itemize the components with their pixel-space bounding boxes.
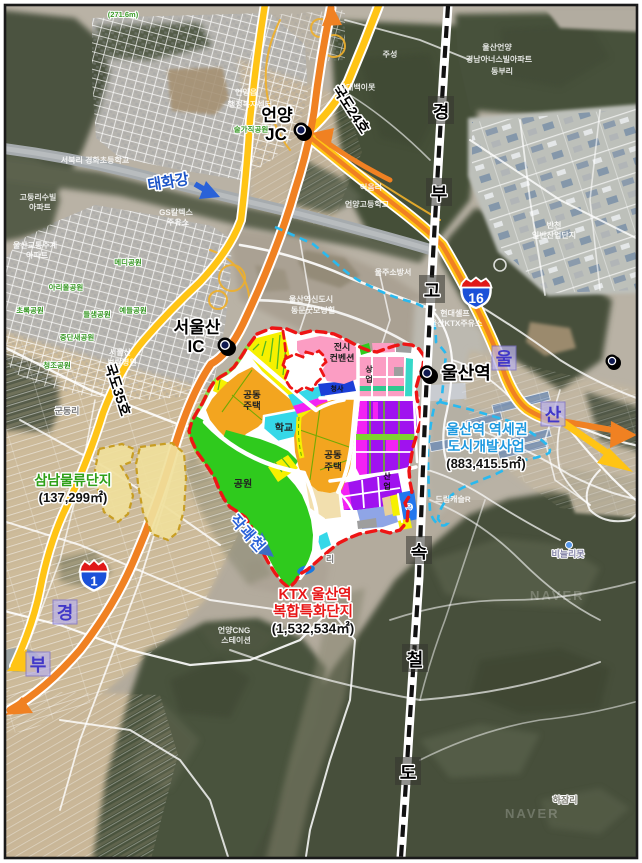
svg-text:현대셀프: 현대셀프	[440, 309, 470, 318]
svg-text:울산역신도시: 울산역신도시	[289, 295, 333, 304]
svg-text:1: 1	[90, 574, 97, 589]
svg-text:JC: JC	[265, 125, 287, 144]
svg-text:(137,299㎡): (137,299㎡)	[39, 490, 108, 505]
svg-text:울산역: 울산역	[441, 363, 491, 383]
svg-text:울산KTX주유소: 울산KTX주유소	[430, 319, 483, 328]
svg-text:부: 부	[30, 655, 47, 675]
svg-text:공동: 공동	[324, 450, 342, 461]
svg-text:울산역 역세권: 울산역 역세권	[446, 421, 527, 437]
svg-text:업: 업	[383, 482, 390, 491]
svg-text:전시: 전시	[334, 342, 351, 352]
svg-text:경남아너스빌아파트: 경남아너스빌아파트	[466, 55, 533, 64]
svg-text:군동리: 군동리	[55, 406, 80, 416]
svg-text:울: 울	[496, 349, 513, 369]
svg-text:서울산: 서울산	[174, 318, 221, 337]
svg-text:부: 부	[431, 184, 448, 204]
svg-text:하잠리: 하잠리	[553, 795, 578, 805]
svg-text:NAVER: NAVER	[530, 588, 585, 603]
svg-text:고둥리수빌: 고둥리수빌	[20, 193, 57, 202]
svg-text:리: 리	[326, 554, 334, 564]
svg-text:산: 산	[545, 405, 562, 425]
svg-text:산: 산	[383, 472, 391, 481]
svg-text:공원: 공원	[234, 478, 252, 490]
svg-text:속: 속	[411, 542, 428, 562]
svg-text:아리울공원: 아리울공원	[49, 283, 84, 292]
svg-text:학교: 학교	[275, 422, 293, 434]
svg-text:울산언양: 울산언양	[482, 43, 512, 52]
svg-text:반천: 반천	[547, 221, 562, 230]
svg-text:(1,532,534㎡): (1,532,534㎡)	[272, 620, 355, 636]
svg-text:(271.6m): (271.6m)	[108, 10, 139, 19]
svg-text:서북리 경화초등학교: 서북리 경화초등학교	[61, 156, 130, 165]
svg-text:주성: 주성	[383, 50, 398, 59]
svg-text:IC: IC	[188, 337, 205, 356]
svg-text:스테이션: 스테이션	[221, 636, 250, 645]
svg-text:16: 16	[468, 290, 484, 306]
svg-text:언양고등학교: 언양고등학교	[345, 200, 390, 209]
svg-text:메디공원: 메디공원	[114, 258, 142, 267]
svg-text:아파트: 아파트	[26, 251, 49, 260]
svg-text:도: 도	[400, 763, 417, 783]
svg-text:행정복지센터: 행정복지센터	[228, 100, 272, 109]
svg-text:어음리: 어음리	[360, 183, 382, 192]
svg-text:주택: 주택	[324, 461, 341, 473]
svg-text:언양읍: 언양읍	[235, 88, 258, 97]
svg-text:예들공원: 예들공원	[119, 306, 147, 315]
svg-text:주택: 주택	[243, 400, 260, 412]
svg-text:술가직공원: 술가직공원	[234, 125, 269, 134]
svg-text:언양CNG: 언양CNG	[218, 626, 251, 635]
svg-text:비늘리못: 비늘리못	[551, 549, 584, 559]
svg-text:컨벤션: 컨벤션	[330, 353, 355, 363]
svg-text:주유소: 주유소	[167, 218, 190, 227]
svg-text:(883,415.5㎡): (883,415.5㎡)	[446, 456, 526, 471]
svg-text:중단새공원: 중단새공원	[60, 333, 95, 342]
svg-text:철: 철	[407, 650, 424, 670]
svg-text:울산교통주계: 울산교통주계	[13, 241, 57, 250]
svg-text:청사: 청사	[331, 385, 344, 393]
svg-text:공동: 공동	[243, 390, 261, 401]
svg-text:동부리: 동부리	[491, 67, 513, 76]
svg-text:GS칼텍스: GS칼텍스	[159, 208, 193, 217]
svg-text:고: 고	[424, 281, 441, 301]
svg-text:동문굿모닝힐: 동문굿모닝힐	[291, 306, 335, 315]
svg-text:복합특화단지: 복합특화단지	[273, 603, 353, 620]
svg-text:보람병원: 보람병원	[107, 358, 136, 367]
svg-text:울주소방서: 울주소방서	[375, 268, 412, 277]
svg-text:상: 상	[365, 365, 373, 374]
svg-text:삼대백이못: 삼대백이못	[339, 83, 376, 92]
svg-text:경: 경	[433, 102, 450, 122]
svg-text:아파트: 아파트	[29, 203, 52, 212]
svg-text:서울산: 서울산	[109, 348, 132, 357]
svg-text:일반산업단지: 일반산업단지	[532, 231, 576, 240]
svg-text:초록공원: 초록공원	[16, 306, 44, 315]
svg-text:KTX 울산역: KTX 울산역	[278, 586, 351, 603]
svg-text:삼남물류단지: 삼남물류단지	[34, 472, 111, 488]
svg-text:도시개발사업: 도시개발사업	[447, 438, 524, 454]
svg-text:NAVER: NAVER	[505, 806, 560, 821]
svg-text:들샘공원: 들샘공원	[83, 310, 111, 319]
svg-text:경: 경	[57, 603, 74, 623]
svg-text:청조공원: 청조공원	[43, 361, 71, 370]
svg-text:업: 업	[365, 375, 372, 384]
svg-text:드림캐슬R: 드림캐슬R	[435, 495, 470, 504]
